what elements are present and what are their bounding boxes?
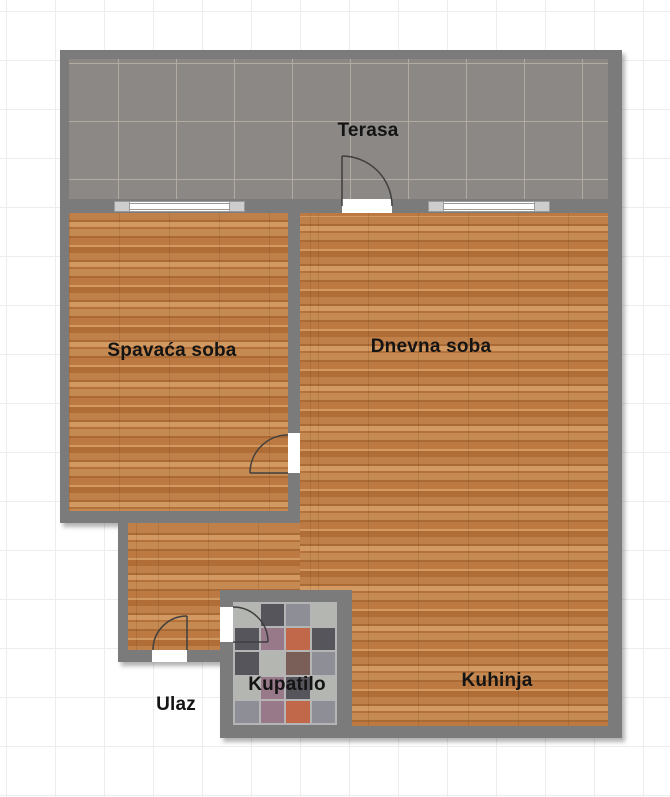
outer-wall-right (608, 50, 622, 738)
window-cap-right (534, 202, 549, 211)
room-label-kitchen: Kuhinja (461, 670, 532, 692)
bathroom-tile (286, 604, 310, 626)
outer-wall-left (60, 50, 69, 523)
room-label-entrance: Ulaz (156, 694, 196, 716)
bathroom-tile (261, 701, 285, 723)
apartment (0, 0, 670, 797)
hallway-left-wall (118, 523, 128, 662)
bathroom-tile (261, 652, 285, 674)
bedroom-door-opening (288, 433, 300, 473)
bathroom-tile (286, 652, 310, 674)
floor-plan: Terasa Spavaća soba Dnevna soba Kupatilo… (0, 0, 670, 797)
room-label-terrace: Terasa (337, 120, 398, 142)
bathroom-tile (312, 628, 336, 650)
window-cap-left (429, 202, 444, 211)
kitchen-bottom-wall (337, 726, 622, 738)
bathroom-tile (235, 701, 259, 723)
bathroom-tile (312, 604, 336, 626)
terrace-door-icon (341, 155, 393, 207)
bathroom-tile (286, 628, 310, 650)
window-cap-left (115, 202, 130, 211)
bathroom-tile (312, 701, 336, 723)
living-room-window (428, 201, 550, 212)
bedroom-door-icon (249, 434, 289, 474)
bedroom-bottom-wall (60, 511, 300, 523)
bathroom-tile (312, 652, 336, 674)
bedroom-living-wall (288, 213, 300, 523)
entrance-door-opening (152, 650, 187, 662)
window-cap-right (229, 202, 244, 211)
room-label-bedroom: Spavaća soba (107, 340, 236, 362)
bathroom-tile (235, 652, 259, 674)
outer-wall-top (60, 50, 622, 59)
room-label-bathroom: Kupatilo (248, 674, 326, 696)
bedroom-window (114, 201, 245, 212)
bathroom-tile (286, 701, 310, 723)
window-pane (130, 203, 229, 210)
entrance-door-icon (152, 615, 188, 651)
bathroom-door-icon (232, 606, 269, 643)
room-label-living-room: Dnevna soba (371, 336, 491, 358)
window-pane (444, 203, 534, 210)
